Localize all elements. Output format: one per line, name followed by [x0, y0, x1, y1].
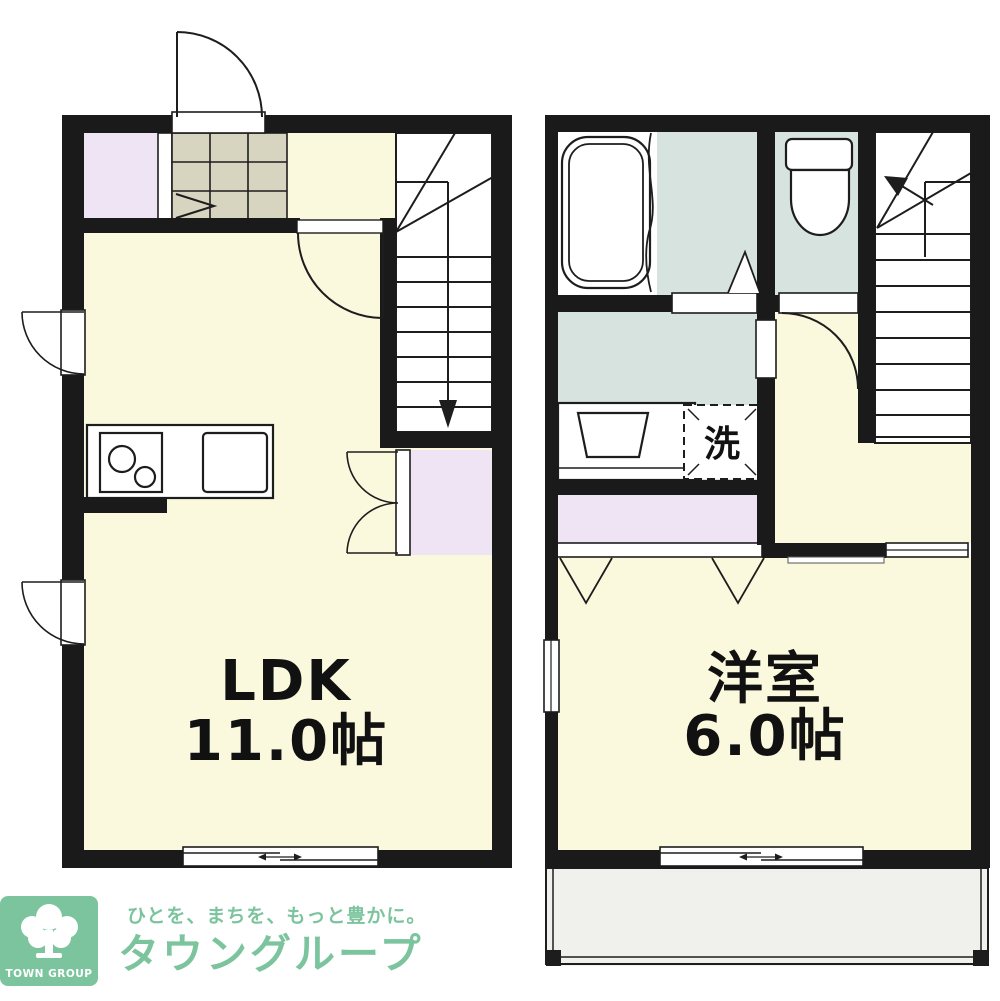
sink-icon	[203, 433, 267, 492]
washroom-door	[756, 320, 776, 378]
sliding-window-1f	[183, 847, 378, 866]
logo-badge-text: TOWN GROUP	[6, 968, 93, 980]
floorplan-image: LDK 11.0帖	[0, 0, 1000, 1001]
laundry-label: 洗	[704, 424, 740, 465]
burner-icon	[109, 446, 135, 472]
floorplan-svg: LDK 11.0帖	[0, 0, 1000, 1001]
floor2-plan: 洗	[544, 115, 990, 966]
staircase-1f	[396, 133, 500, 432]
sliding-window-2f	[660, 847, 863, 866]
floor1-plan: LDK 11.0帖	[22, 32, 512, 868]
staircase-2f	[875, 132, 971, 443]
washing-machine-area: 洗	[684, 405, 760, 479]
casement-window-2	[22, 580, 85, 645]
logo-brand: タウングループ	[118, 930, 424, 978]
logo-tagline: ひとを、まちを、もっと豊かに。	[127, 904, 426, 927]
vanity-sink-icon	[558, 403, 695, 480]
burner-icon	[135, 467, 155, 487]
logo-badge: TOWN GROUP	[0, 896, 98, 986]
ldk-label: LDK	[220, 649, 352, 714]
bathtub-icon	[562, 133, 653, 292]
entry-room-door	[158, 133, 172, 221]
entry-room	[84, 133, 158, 218]
western-room-label: 洋室	[707, 647, 823, 712]
side-window-2f	[544, 640, 559, 712]
western-room-size-label: 6.0帖	[683, 704, 846, 769]
entrance-door	[172, 32, 265, 133]
ldk-size-label: 11.0帖	[184, 709, 388, 774]
balcony	[546, 866, 989, 966]
toilet-icon	[786, 139, 852, 235]
kitchen-counter	[87, 425, 273, 498]
town-group-logo: TOWN GROUP ひとを、まちを、もっと豊かに。 タウングループ	[0, 896, 426, 986]
casement-window-1	[22, 310, 85, 375]
genkan-tiles	[172, 133, 287, 221]
